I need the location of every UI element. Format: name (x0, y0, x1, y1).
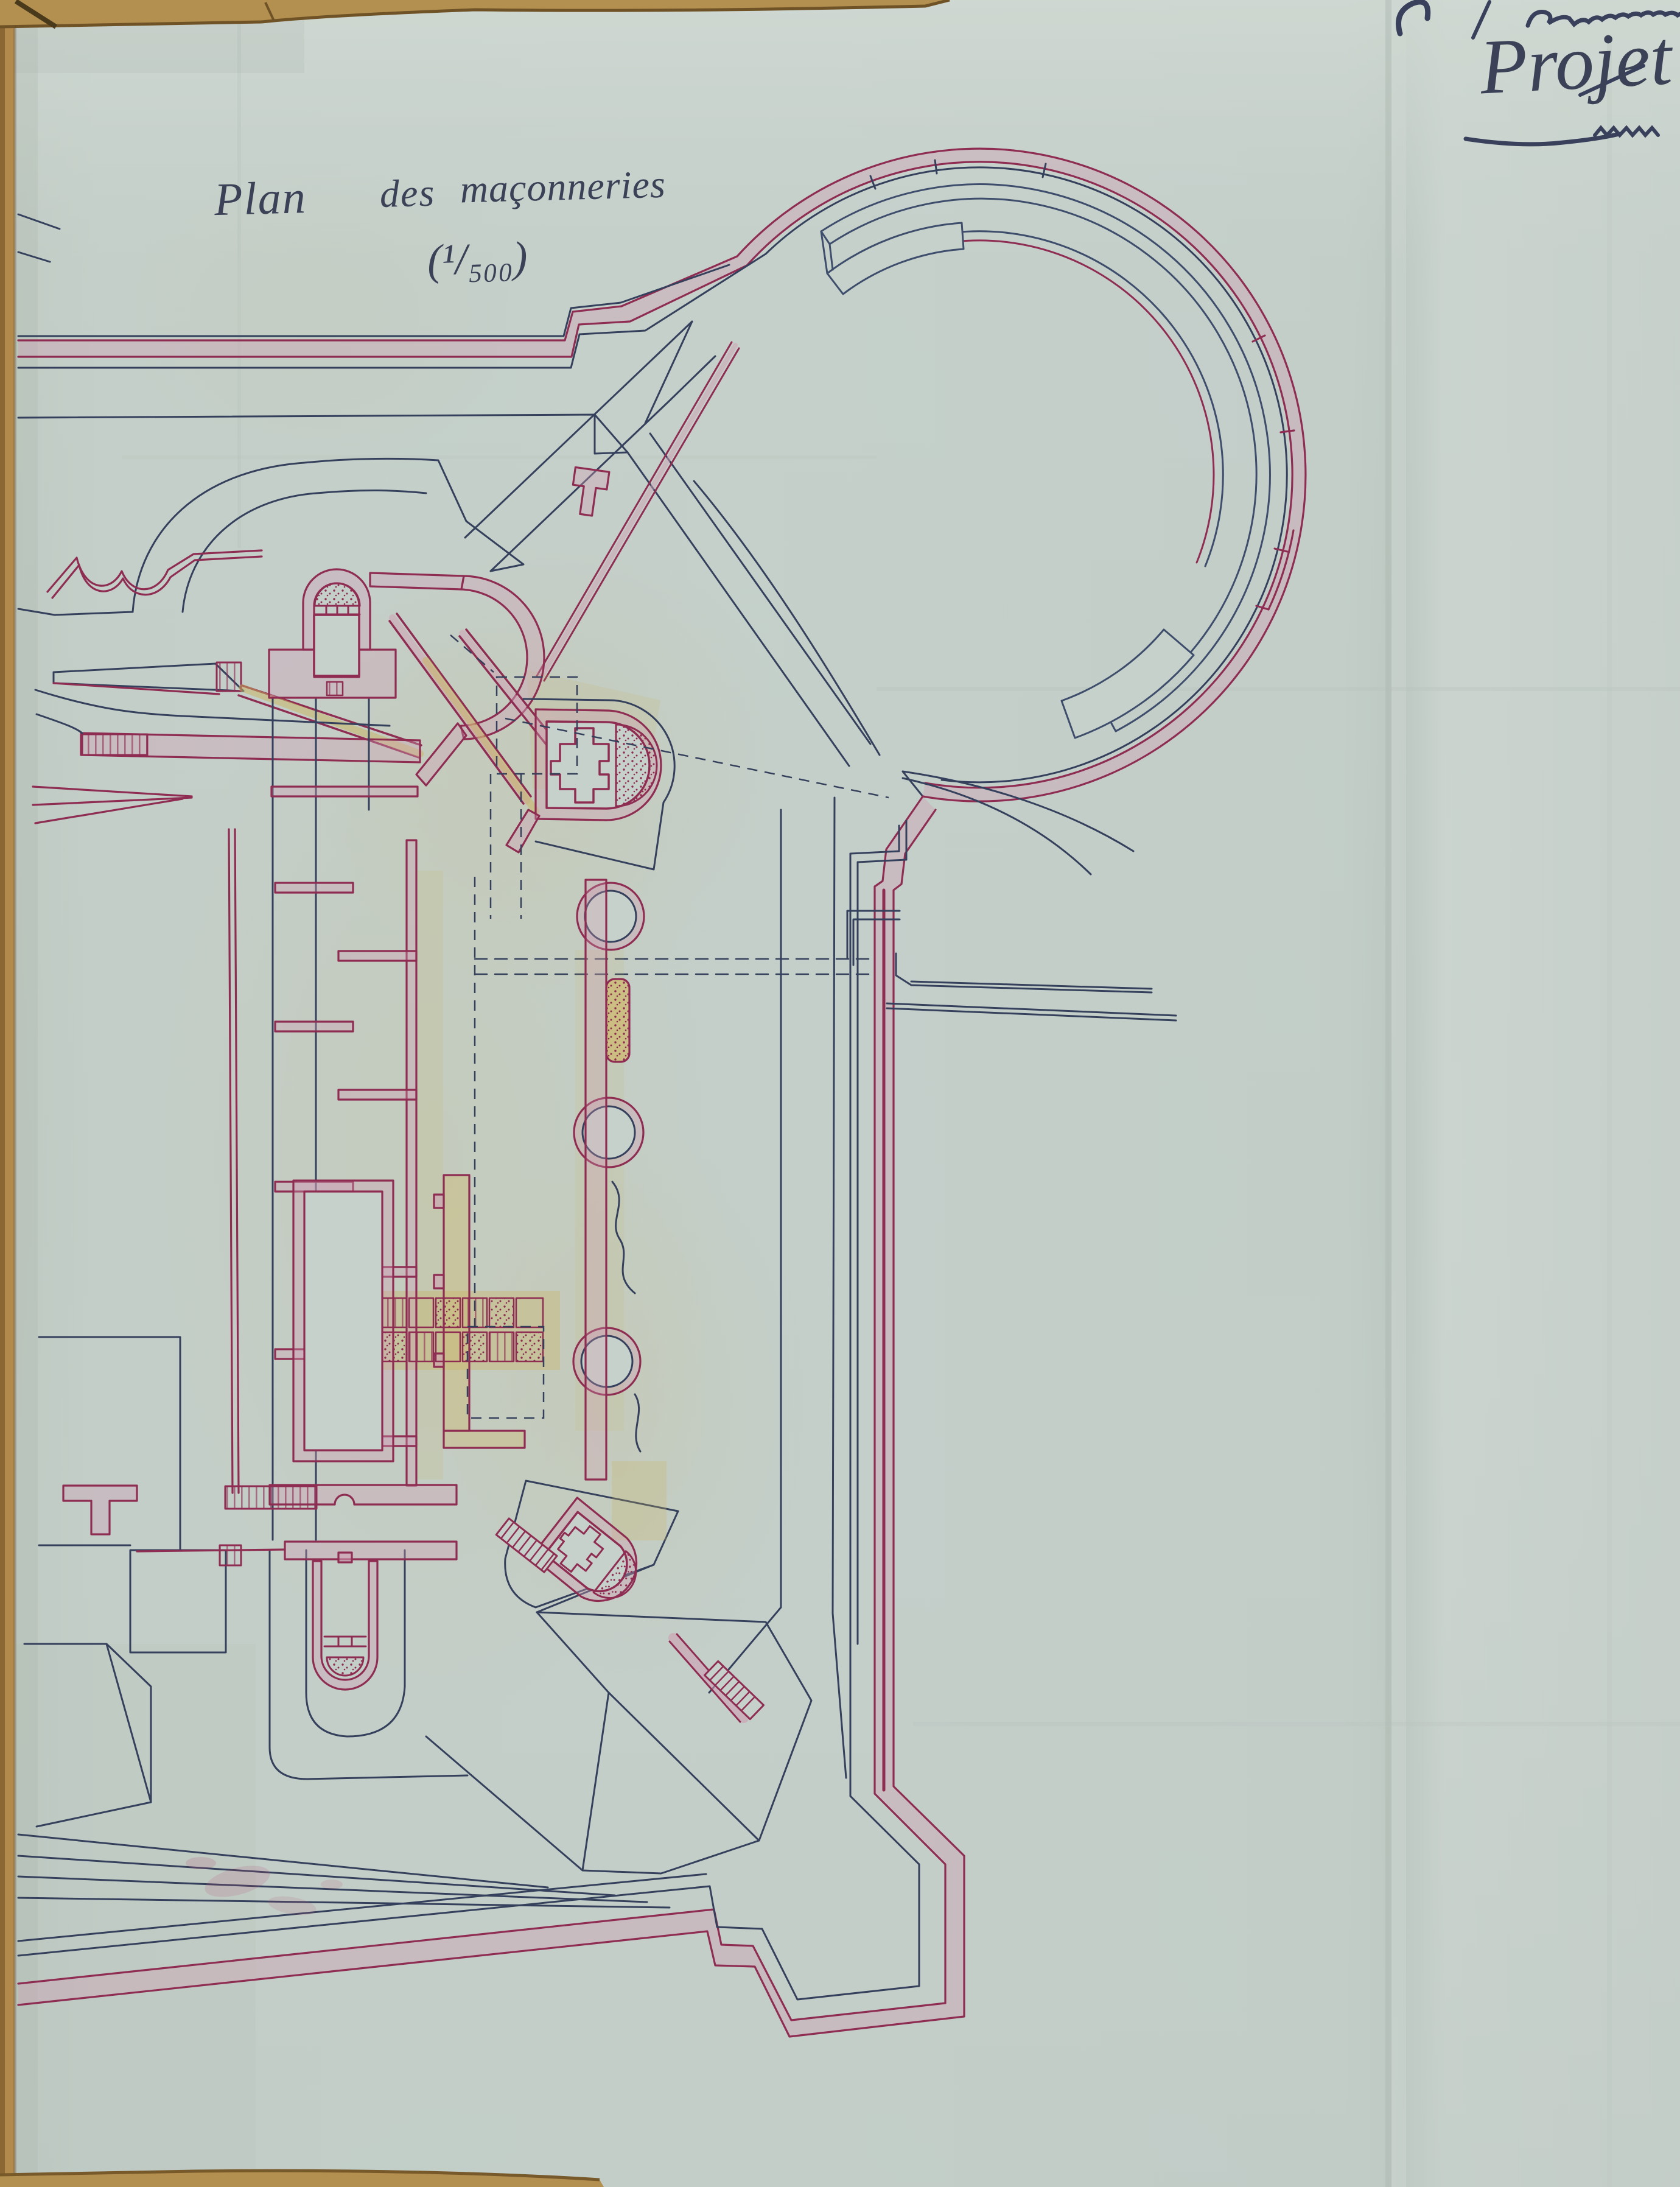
svg-text:des: des (379, 171, 436, 216)
svg-text:maçonneries: maçonneries (460, 163, 667, 211)
svg-text:Plan: Plan (213, 172, 307, 225)
svg-text:(¹/₅₀₀): (¹/₅₀₀) (426, 233, 528, 285)
svg-text:Projet: Projet (1477, 14, 1676, 111)
